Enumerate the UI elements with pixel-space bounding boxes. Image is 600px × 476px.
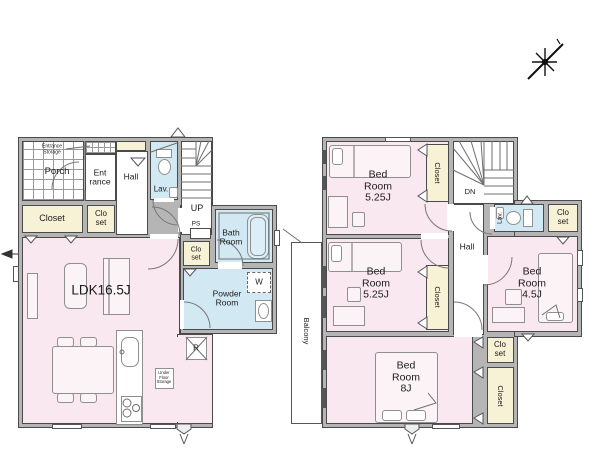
door-gap-lav2 — [490, 207, 495, 229]
window-bedroom3-right1 — [577, 250, 583, 266]
balcony-door-bedroom2a — [322, 266, 326, 288]
window-bedroom1-left2 — [322, 176, 326, 190]
room-porch — [22, 141, 84, 201]
kitchen-sink — [121, 337, 139, 367]
balcony-door-bedroom2b — [322, 296, 326, 318]
door-gap-powder — [180, 300, 184, 329]
closet-2f-tall — [487, 367, 514, 424]
window-bath-right — [274, 230, 280, 246]
chair-bedroom1 — [352, 212, 365, 227]
closet-lav-2f — [548, 204, 578, 232]
balcony-rail — [291, 242, 322, 424]
toilet-1f-tank — [156, 149, 172, 158]
chair-bedroom3 — [505, 289, 522, 305]
kitchen-stove — [121, 396, 142, 422]
toilet-2f-tank — [523, 209, 533, 227]
dining-chair — [57, 337, 74, 347]
window-bedroom1-top — [385, 137, 411, 142]
ldk-join — [176, 337, 182, 422]
closet-1f-hall — [87, 205, 115, 233]
window-arrow-left — [2, 250, 18, 258]
door-gap-bath — [218, 262, 242, 269]
sofa — [103, 258, 130, 315]
room-hall-1f — [116, 151, 148, 235]
balcony-door-bedroom4b — [322, 388, 326, 408]
lav-basin-2f — [496, 207, 504, 219]
dining-chair — [57, 393, 74, 403]
closet-1f-large — [22, 205, 83, 233]
door-gap-lav1 — [154, 198, 174, 202]
window-ldk-bottom1 — [52, 424, 82, 429]
closet-powder — [183, 241, 210, 266]
room-entrance — [85, 154, 116, 201]
door-gap-bedroom2 — [421, 233, 448, 239]
compass-north-icon — [528, 39, 563, 79]
desk-bedroom2 — [333, 306, 365, 326]
pillow — [331, 245, 342, 262]
closet-2f-small — [487, 337, 514, 363]
tv-board — [27, 273, 38, 319]
desk-bedroom1 — [328, 196, 348, 228]
pipe-space — [190, 228, 211, 239]
desk-bedroom3 — [492, 307, 525, 323]
toilet-1f-bowl — [158, 159, 171, 175]
window-bedroom3-right2 — [577, 288, 583, 302]
refrigerator-space-box — [186, 337, 207, 360]
coffee-table — [64, 263, 87, 309]
floor-plan-canvas: Entrance Storage Porch Ent rance Hall La… — [0, 0, 600, 476]
door-gap-stairs1 — [178, 208, 182, 232]
under-floor-storage-box — [155, 368, 174, 389]
room-ldk — [22, 237, 180, 424]
toilet-2f-bowl — [506, 211, 521, 225]
stairs-1f[interactable] — [181, 141, 212, 235]
entrance-storage — [85, 141, 116, 154]
bathtub-inner — [250, 217, 266, 256]
washer-space-box — [247, 272, 271, 293]
pillow — [546, 312, 564, 321]
balcony-door-bedroom4a — [322, 350, 326, 370]
dining-chair — [80, 337, 97, 347]
shoe-cabinet — [116, 141, 146, 151]
closet-bedroom2 — [426, 265, 449, 330]
pillow — [382, 410, 402, 421]
door-gap-bedroom3 — [483, 255, 488, 284]
window-bedroom1-left1 — [322, 150, 326, 164]
pillow — [406, 410, 426, 421]
lav-basin-1f — [169, 187, 178, 198]
closet-bedroom1 — [426, 144, 449, 202]
powder-vanity-bowl — [258, 303, 269, 319]
pillow — [332, 148, 343, 165]
door-gap-bedroom4 — [454, 331, 482, 337]
door-gap-ldk — [150, 234, 178, 239]
door-gap-bedroom1 — [447, 204, 454, 231]
room-hall-2f — [453, 204, 484, 335]
window-ldk-left — [13, 266, 19, 282]
stairs-2f[interactable] — [453, 141, 514, 204]
dining-table — [52, 346, 114, 394]
dining-chair — [80, 393, 97, 403]
window-bedroom4-bottom — [432, 424, 460, 429]
chair-bedroom2 — [347, 287, 361, 302]
window-ldk-bottom2 — [150, 424, 176, 429]
